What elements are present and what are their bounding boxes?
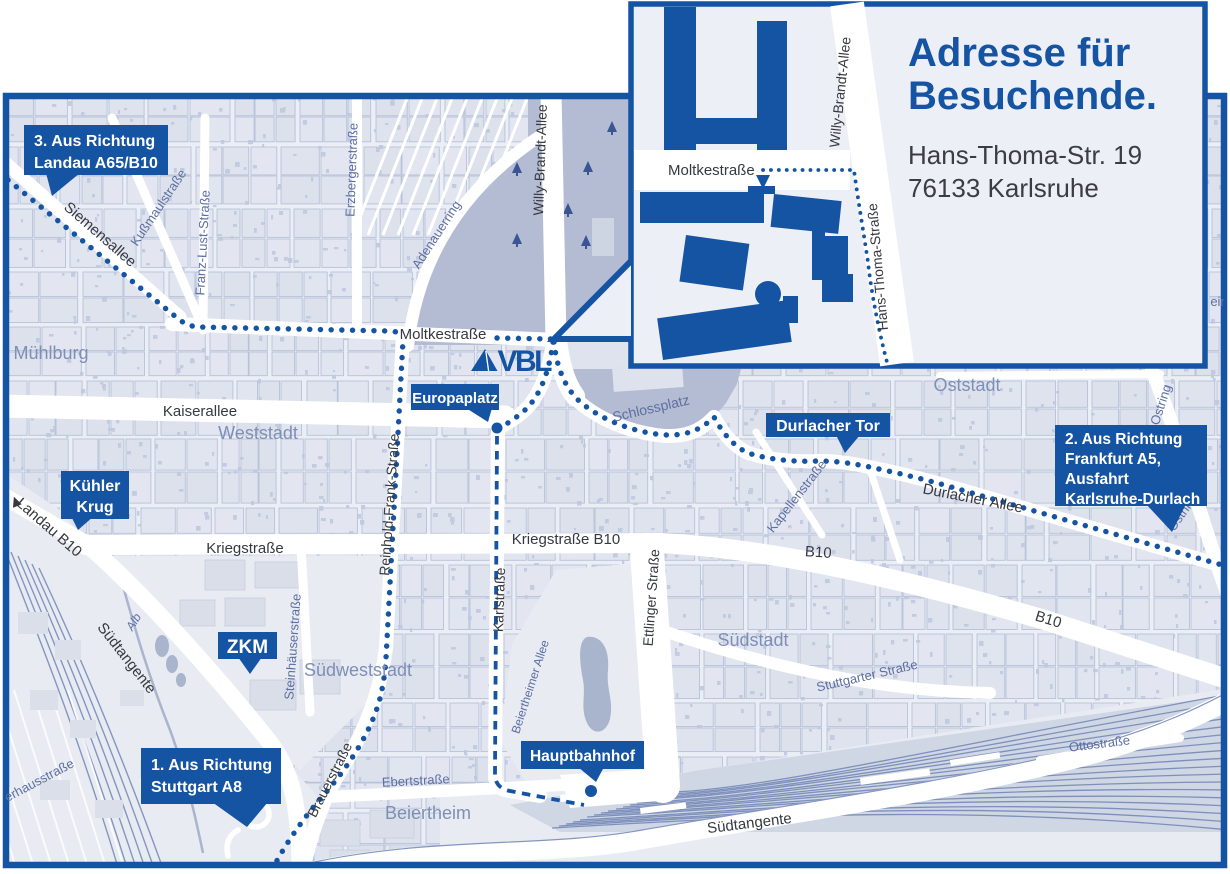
svg-text:Kriegstraße B10: Kriegstraße B10 [512,531,620,548]
svg-text:Südstadt: Südstadt [717,630,788,650]
svg-text:Hauptbahnhof: Hauptbahnhof [530,748,636,765]
svg-text:Kaiserallee: Kaiserallee [163,403,237,420]
svg-text:Stuttgart A8: Stuttgart A8 [151,779,242,796]
svg-text:Südweststadt: Südweststadt [304,660,412,680]
svg-text:Kühler: Kühler [70,478,121,495]
svg-text:Landau A65/B10: Landau A65/B10 [34,155,158,172]
svg-text:Durlacher Tor: Durlacher Tor [776,418,880,435]
svg-text:Besuchende.: Besuchende. [908,74,1157,118]
svg-text:Krug: Krug [76,499,113,516]
svg-text:Ausfahrt: Ausfahrt [1065,471,1129,488]
svg-text:1. Aus Richtung: 1. Aus Richtung [151,757,272,774]
svg-text:Oststadt: Oststadt [933,375,1000,395]
svg-text:Europaplatz: Europaplatz [412,390,498,407]
svg-text:B10: B10 [804,543,832,562]
svg-text:VBL: VBL [498,345,553,378]
svg-text:ZKM: ZKM [227,637,268,658]
svg-text:Adresse für: Adresse für [908,31,1130,75]
svg-text:Karlstraße: Karlstraße [490,567,508,632]
svg-text:Moltkestraße: Moltkestraße [400,326,487,343]
svg-text:Moltkestraße: Moltkestraße [668,162,755,179]
svg-text:2. Aus Richtung: 2. Aus Richtung [1065,431,1182,448]
svg-text:Weststadt: Weststadt [218,423,298,443]
svg-text:3. Aus Richtung: 3. Aus Richtung [34,133,155,150]
svg-text:Beiertheim: Beiertheim [385,803,471,823]
svg-text:Frankfurt A5,: Frankfurt A5, [1065,451,1161,468]
svg-text:Hans-Thoma-Str. 19: Hans-Thoma-Str. 19 [908,140,1142,170]
svg-text:Kriegstraße: Kriegstraße [206,540,284,557]
svg-text:76133 Karlsruhe: 76133 Karlsruhe [908,173,1099,203]
svg-text:Mühlburg: Mühlburg [13,343,88,363]
svg-text:Karlsruhe-Durlach: Karlsruhe-Durlach [1065,491,1200,508]
